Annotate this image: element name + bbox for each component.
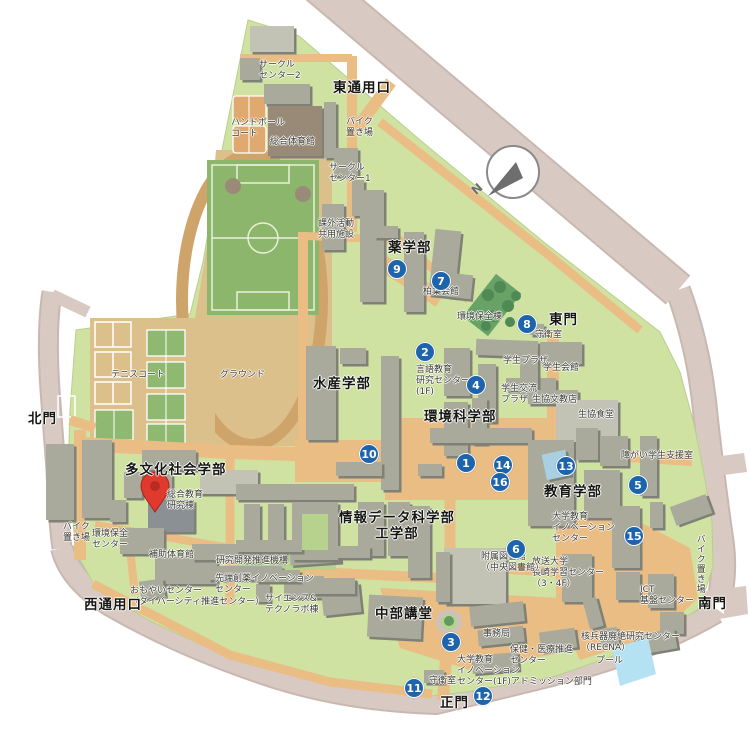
tennis-court: テニスコート xyxy=(111,370,165,381)
building xyxy=(82,440,115,521)
building xyxy=(250,26,297,55)
marker-2[interactable]: 2 xyxy=(415,342,435,362)
general-education-research-bldg: 総合教育 研究棟 xyxy=(167,490,203,512)
auxiliary-gymnasium: 補助体育館 xyxy=(149,550,194,561)
marker-13[interactable]: 13 xyxy=(556,456,576,476)
campus-map: N サークル センター2東通用口ハンドボール コート総合体育館バイク 置き場サー… xyxy=(0,0,750,750)
innovation-admission-office: 大学教育 イノベーション センター(1F)アドミッション部門 xyxy=(457,655,592,687)
pool: プール xyxy=(596,656,623,667)
east-gate: 東門 xyxy=(549,312,578,328)
extracurricular-shared-bldg: 課外活動 共用施設 xyxy=(318,219,354,241)
building xyxy=(46,444,77,523)
marker-8[interactable]: 8 xyxy=(517,314,537,334)
building xyxy=(436,552,453,605)
infodata-engineering-faculty: 情報データ科学部 工学部 xyxy=(339,510,455,542)
ground: グラウンド xyxy=(220,370,265,381)
building xyxy=(418,464,445,479)
environment-preservation-center: 環境保全 センター xyxy=(92,529,128,551)
main-gate: 正門 xyxy=(440,695,469,711)
compass-icon xyxy=(487,146,539,198)
building xyxy=(236,484,357,503)
west-service-entrance: 西通用口 xyxy=(84,597,142,613)
student-plaza: 学生プラザ xyxy=(503,356,548,367)
multicultural-faculty: 多文化社会学部 xyxy=(125,462,227,478)
rd-promotion-organization: 研究開発推進機構 xyxy=(216,556,288,567)
building xyxy=(576,428,601,463)
building xyxy=(264,84,313,107)
building xyxy=(650,502,666,531)
marker-9[interactable]: 9 xyxy=(387,259,407,279)
coop-cafeteria: 生協食堂 xyxy=(578,410,614,421)
pharmacy-faculty: 薬学部 xyxy=(388,240,432,256)
marker-15[interactable]: 15 xyxy=(624,526,644,546)
marker-3[interactable]: 3 xyxy=(441,632,461,652)
courtyard xyxy=(302,514,328,550)
bike-parking-west: バイク 置き場 xyxy=(63,522,90,544)
marker-11[interactable]: 11 xyxy=(404,678,424,698)
education-faculty: 教育学部 xyxy=(544,484,602,500)
administration-office: 事務局 xyxy=(483,629,510,640)
science-technolab-bldg: サイエンス& テクノラボ棟 xyxy=(265,594,318,616)
fisheries-faculty: 水産学部 xyxy=(313,376,371,392)
circle-center-2: サークル センター2 xyxy=(259,60,301,82)
south-gate: 南門 xyxy=(698,596,727,612)
environmental-science-faculty: 環境科学部 xyxy=(424,409,497,425)
building xyxy=(236,540,305,555)
circle-center-1: サークル センター1 xyxy=(329,163,371,185)
general-gymnasium: 総合体育館 xyxy=(270,137,315,148)
marker-4[interactable]: 4 xyxy=(466,375,486,395)
building xyxy=(360,190,387,305)
building xyxy=(340,348,369,367)
bike-parking-south: バイク置き場 xyxy=(694,534,705,594)
student-hall: 学生会館 xyxy=(543,363,579,374)
east-gate-guard: 守衛室 xyxy=(535,330,562,341)
building xyxy=(110,500,129,525)
east-service-entrance: 東通用口 xyxy=(333,80,391,96)
chubu-auditorium: 中部講堂 xyxy=(375,606,433,622)
building xyxy=(336,462,385,479)
bike-parking-north: バイク 置き場 xyxy=(346,117,373,139)
marker-10[interactable]: 10 xyxy=(359,444,379,464)
marker-1[interactable]: 1 xyxy=(456,453,476,473)
language-education-center: 言語教育 研究センター (1F) xyxy=(416,365,470,397)
coop-bunkyo-store: 生協文教店 xyxy=(532,395,577,406)
marker-16[interactable]: 16 xyxy=(490,472,510,492)
building xyxy=(430,428,535,446)
north-gate: 北門 xyxy=(28,411,57,427)
ict-infrastructure-center: ICT 基盤センター xyxy=(640,585,694,607)
disability-student-support: 障がい学生支援室 xyxy=(621,451,693,462)
marker-6[interactable]: 6 xyxy=(506,539,526,559)
marker-12[interactable]: 12 xyxy=(473,686,493,706)
main-gate-guard: 守衛室 xyxy=(429,676,456,687)
univ-education-innovation-center: 大学教育 イノベーション センター xyxy=(552,512,615,544)
building xyxy=(616,572,643,603)
building xyxy=(306,346,339,443)
recna-center: 核兵器廃絶研究センター （RECNA） xyxy=(581,632,680,654)
building xyxy=(336,546,373,561)
omoyai-center: おもやいセンター （ダイバーシティ推進センター） xyxy=(130,586,264,608)
building xyxy=(374,226,401,241)
environment-preservation-bldg: 環境保全棟 xyxy=(457,312,502,323)
marker-7[interactable]: 7 xyxy=(431,271,451,291)
marker-5[interactable]: 5 xyxy=(628,475,648,495)
